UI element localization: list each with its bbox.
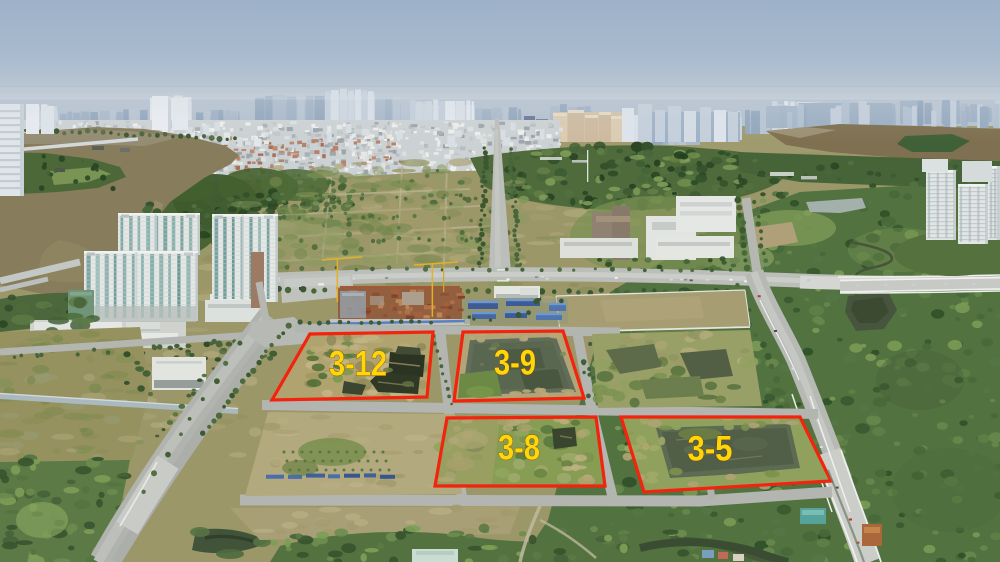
svg-text:3-5: 3-5: [688, 430, 733, 469]
svg-text:3-12: 3-12: [329, 345, 387, 384]
svg-text:3-8: 3-8: [498, 429, 540, 468]
svg-text:3-9: 3-9: [494, 344, 536, 383]
